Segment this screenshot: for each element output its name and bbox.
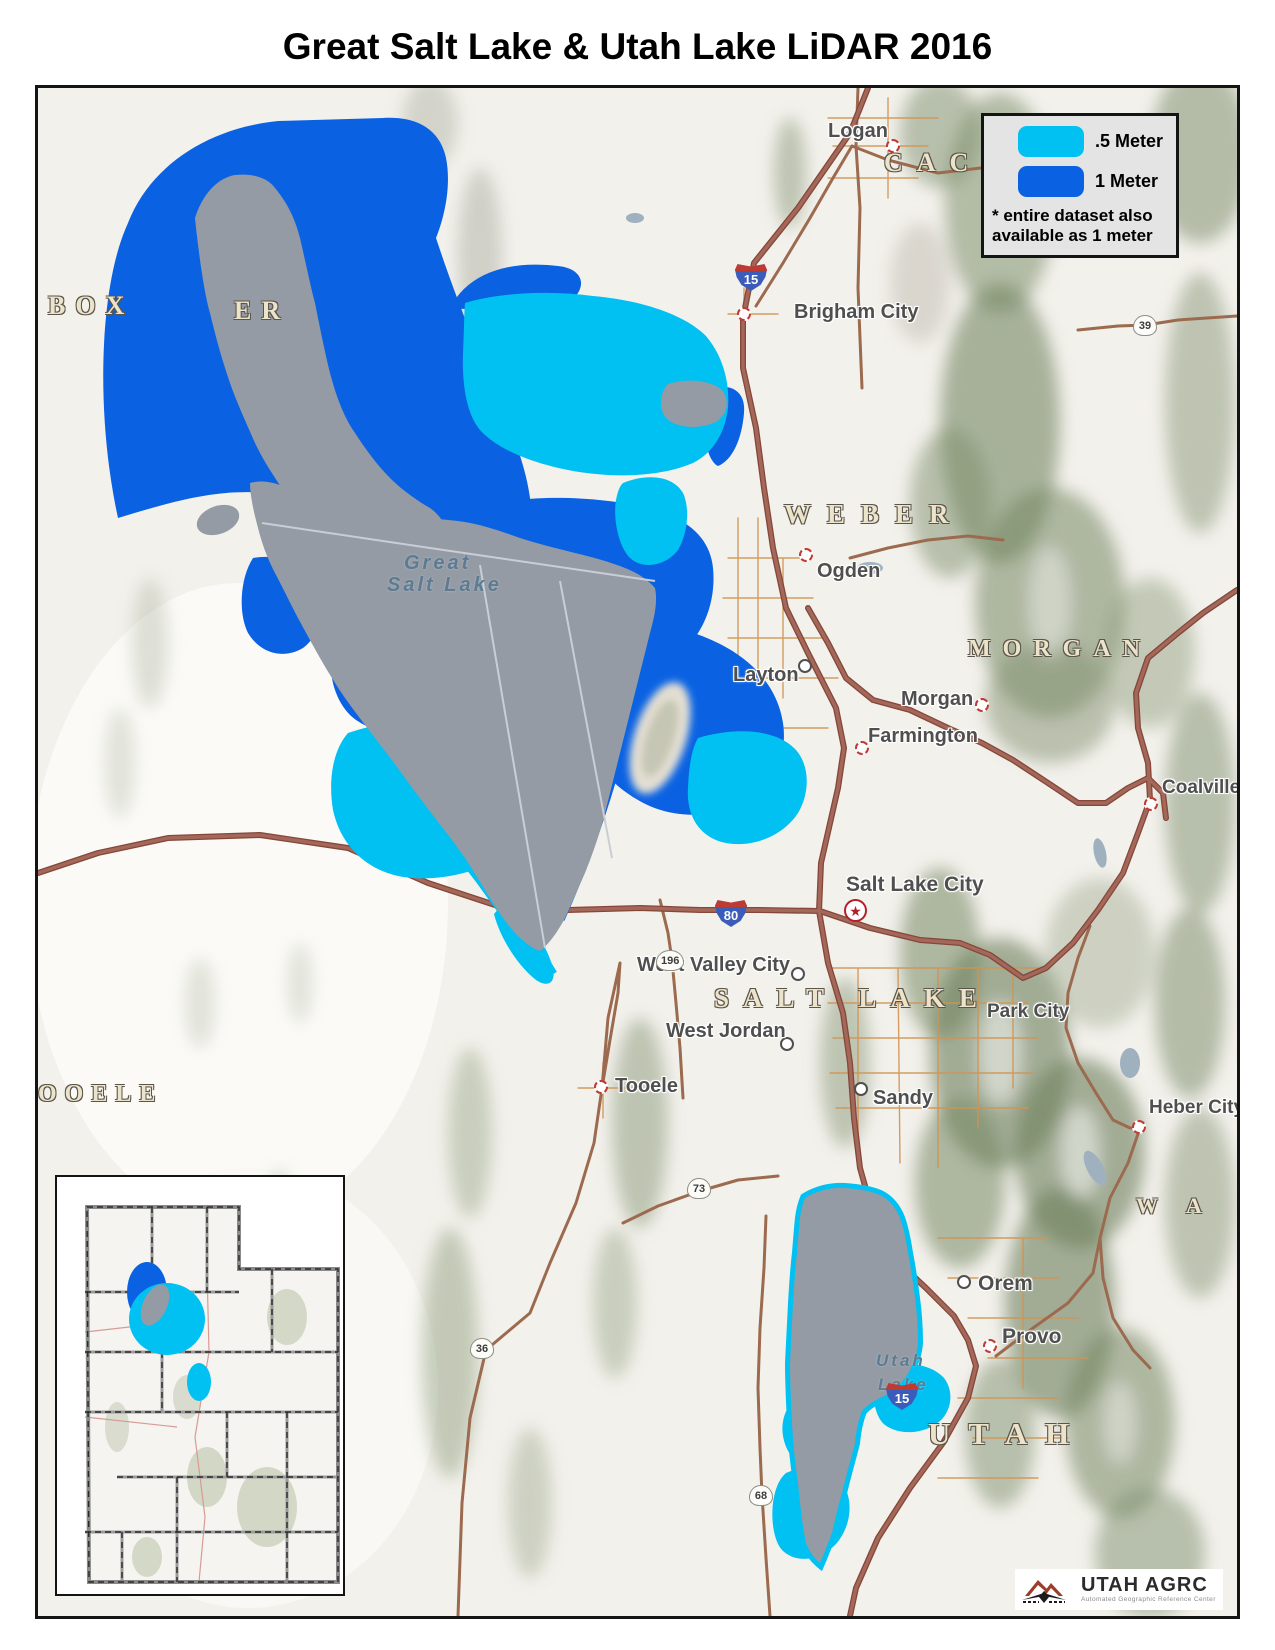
- state-route-73-shield: 73: [687, 1178, 711, 1199]
- county-label-box-elder-left: BOX: [48, 291, 134, 321]
- salt-lake-city-capital-marker: ★: [844, 899, 867, 922]
- half-meter-label: .5 Meter: [1095, 131, 1163, 152]
- county-label-weber: WEBER: [784, 499, 965, 530]
- legend: .5 Meter 1 Meter * entire dataset also a…: [981, 113, 1179, 258]
- city-label-sandy: Sandy: [873, 1087, 933, 1110]
- agrc-mountain-icon: [1021, 1574, 1073, 1606]
- agrc-logo-subtitle: Automated Geographic Reference Center: [1081, 1597, 1216, 1604]
- west-valley-city-marker: [791, 967, 805, 981]
- coalville-marker: [1144, 797, 1158, 811]
- city-label-park-city: Park City: [987, 1001, 1069, 1023]
- layton-marker: [798, 659, 812, 673]
- agrc-logo: UTAH AGRC Automated Geographic Reference…: [1015, 1569, 1223, 1610]
- state-route-36-shield: 36: [470, 1338, 494, 1359]
- morgan-marker: [975, 698, 989, 712]
- county-label-salt-lake: SALT LAKE: [714, 983, 991, 1014]
- state-route-196-shield: 196: [656, 950, 684, 971]
- lake-label-gsl-line1: Great: [404, 552, 471, 575]
- city-label-layton: Layton: [733, 664, 799, 687]
- ogden-marker: [799, 548, 813, 562]
- city-label-orem: Orem: [978, 1272, 1033, 1296]
- city-label-brigham-city: Brigham City: [794, 301, 918, 324]
- map-canvas: ★ Logan Brigham City Ogden Layton Morgan…: [35, 85, 1240, 1619]
- city-label-tooele: Tooele: [615, 1075, 678, 1098]
- county-label-morgan: MORGAN: [968, 636, 1152, 663]
- city-label-farmington: Farmington: [868, 725, 978, 748]
- city-label-provo: Provo: [1002, 1325, 1062, 1349]
- utah-state-inset-map: [55, 1175, 345, 1596]
- legend-note-line1: * entire dataset also: [992, 206, 1168, 226]
- county-label-box-elder-right: ER: [234, 296, 290, 326]
- county-label-utah: UTAH: [928, 1416, 1087, 1452]
- city-label-coalville: Coalville: [1162, 777, 1240, 799]
- legend-note: * entire dataset also available as 1 met…: [992, 206, 1168, 247]
- heber-city-marker: [1132, 1120, 1146, 1134]
- state-route-68-shield: 68: [749, 1485, 773, 1506]
- legend-row-one-meter: 1 Meter: [1018, 166, 1168, 197]
- city-label-morgan: Morgan: [901, 688, 973, 711]
- city-label-salt-lake-city: Salt Lake City: [846, 873, 984, 897]
- one-meter-label: 1 Meter: [1095, 171, 1158, 192]
- half-meter-swatch: [1018, 126, 1084, 157]
- farmington-marker: [855, 741, 869, 755]
- city-label-heber-city: Heber City: [1149, 1097, 1240, 1119]
- legend-note-line2: available as 1 meter: [992, 226, 1168, 246]
- map-title: Great Salt Lake & Utah Lake LiDAR 2016: [0, 26, 1275, 68]
- lake-label-gsl-line2: Salt Lake: [387, 574, 502, 597]
- city-label-west-jordan: West Jordan: [666, 1020, 786, 1043]
- brigham-city-marker: [737, 307, 751, 321]
- orem-marker: [957, 1275, 971, 1289]
- city-label-ogden: Ogden: [817, 560, 880, 583]
- county-label-wasatch: W A: [1136, 1193, 1214, 1219]
- state-route-39-shield: 39: [1133, 315, 1157, 336]
- sandy-marker: [854, 1082, 868, 1096]
- tooele-marker: [594, 1080, 608, 1094]
- city-label-logan: Logan: [828, 120, 888, 143]
- inset-svg: [57, 1177, 343, 1594]
- page: Great Salt Lake & Utah Lake LiDAR 2016: [0, 0, 1275, 1650]
- legend-row-half-meter: .5 Meter: [1018, 126, 1168, 157]
- provo-marker: [983, 1339, 997, 1353]
- one-meter-swatch: [1018, 166, 1084, 197]
- lake-label-utah-line1: Utah: [876, 1351, 926, 1371]
- county-label-tooele: OOELE: [38, 1081, 163, 1108]
- agrc-logo-name: UTAH AGRC: [1081, 1575, 1216, 1595]
